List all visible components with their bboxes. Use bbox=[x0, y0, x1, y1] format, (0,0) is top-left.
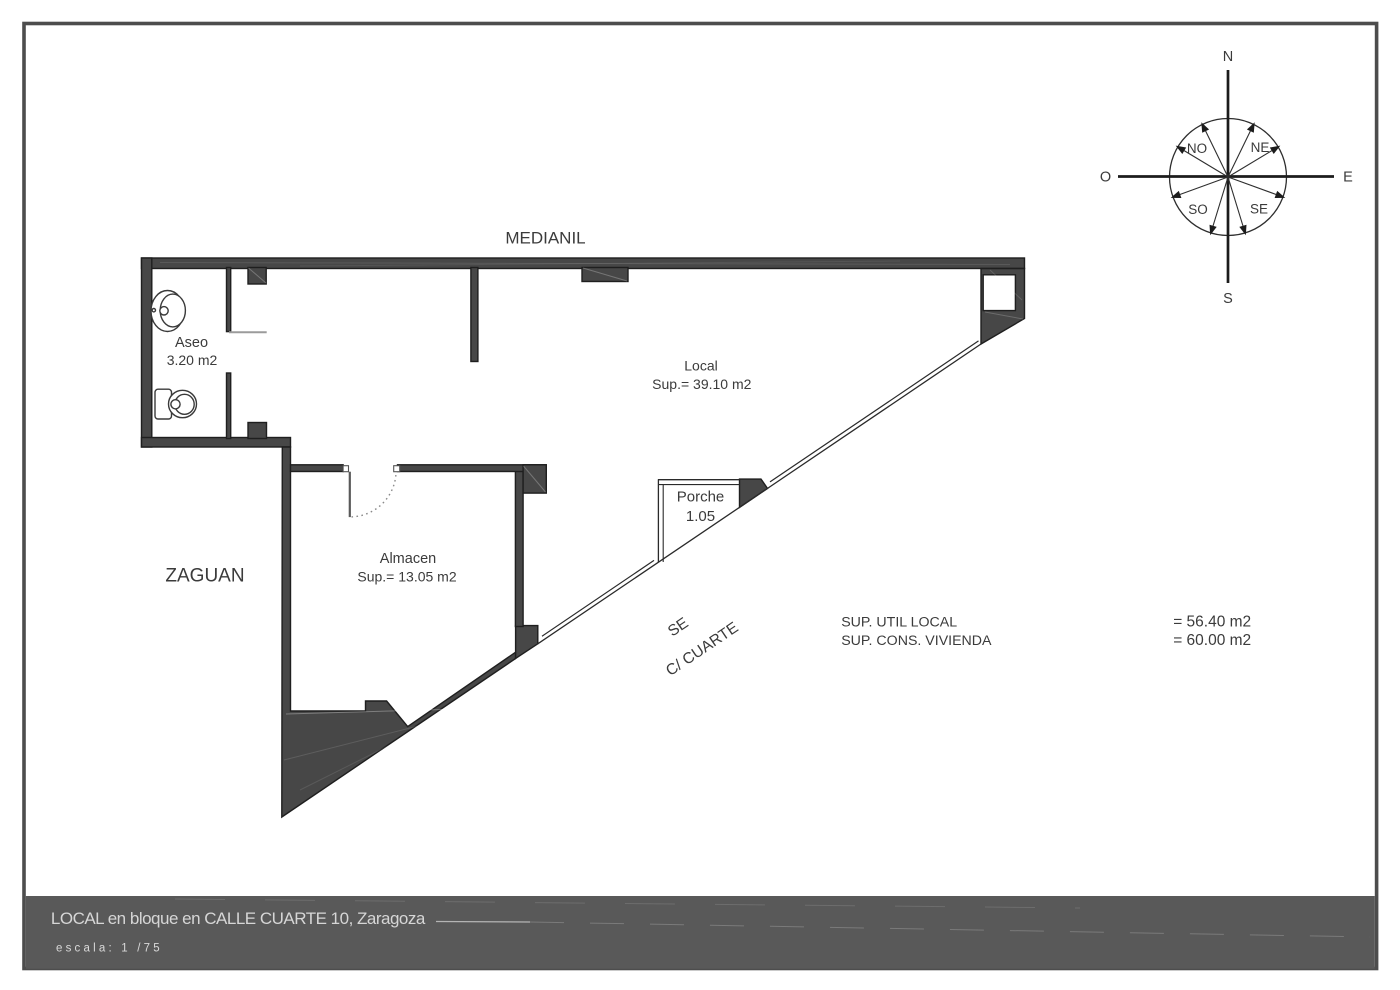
svg-text:= 60.00 m2: = 60.00 m2 bbox=[1173, 632, 1251, 649]
svg-text:Almacen: Almacen bbox=[380, 551, 436, 567]
svg-text:E: E bbox=[1343, 170, 1353, 186]
svg-text:Sup.= 13.05 m2: Sup.= 13.05 m2 bbox=[357, 569, 456, 585]
svg-text:MEDIANIL: MEDIANIL bbox=[505, 229, 585, 248]
svg-text:N: N bbox=[1223, 49, 1233, 65]
svg-text:Aseo: Aseo bbox=[175, 335, 208, 351]
svg-text:SE: SE bbox=[1250, 202, 1268, 217]
svg-text:Local: Local bbox=[684, 358, 717, 374]
svg-text:SUP. UTIL LOCAL: SUP. UTIL LOCAL bbox=[841, 615, 957, 631]
svg-text:Sup.= 39.10 m2: Sup.= 39.10 m2 bbox=[652, 376, 751, 392]
svg-text:1.05: 1.05 bbox=[686, 508, 715, 525]
svg-text:S: S bbox=[1223, 291, 1233, 307]
svg-text:NE: NE bbox=[1251, 140, 1270, 155]
svg-text:LOCAL en bloque en CALLE CUART: LOCAL en bloque en CALLE CUARTE 10, Zara… bbox=[51, 909, 426, 928]
svg-text:SUP. CONS. VIVIENDA: SUP. CONS. VIVIENDA bbox=[841, 633, 992, 649]
svg-text:3.20 m2: 3.20 m2 bbox=[167, 352, 218, 368]
svg-text:SO: SO bbox=[1188, 202, 1208, 217]
svg-text:= 56.40 m2: = 56.40 m2 bbox=[1173, 614, 1251, 631]
svg-text:escala: 1 /75: escala: 1 /75 bbox=[56, 943, 163, 955]
svg-text:O: O bbox=[1100, 170, 1111, 186]
svg-text:ZAGUAN: ZAGUAN bbox=[165, 566, 244, 587]
svg-text:NO: NO bbox=[1187, 141, 1207, 156]
svg-text:Porche: Porche bbox=[677, 489, 725, 506]
